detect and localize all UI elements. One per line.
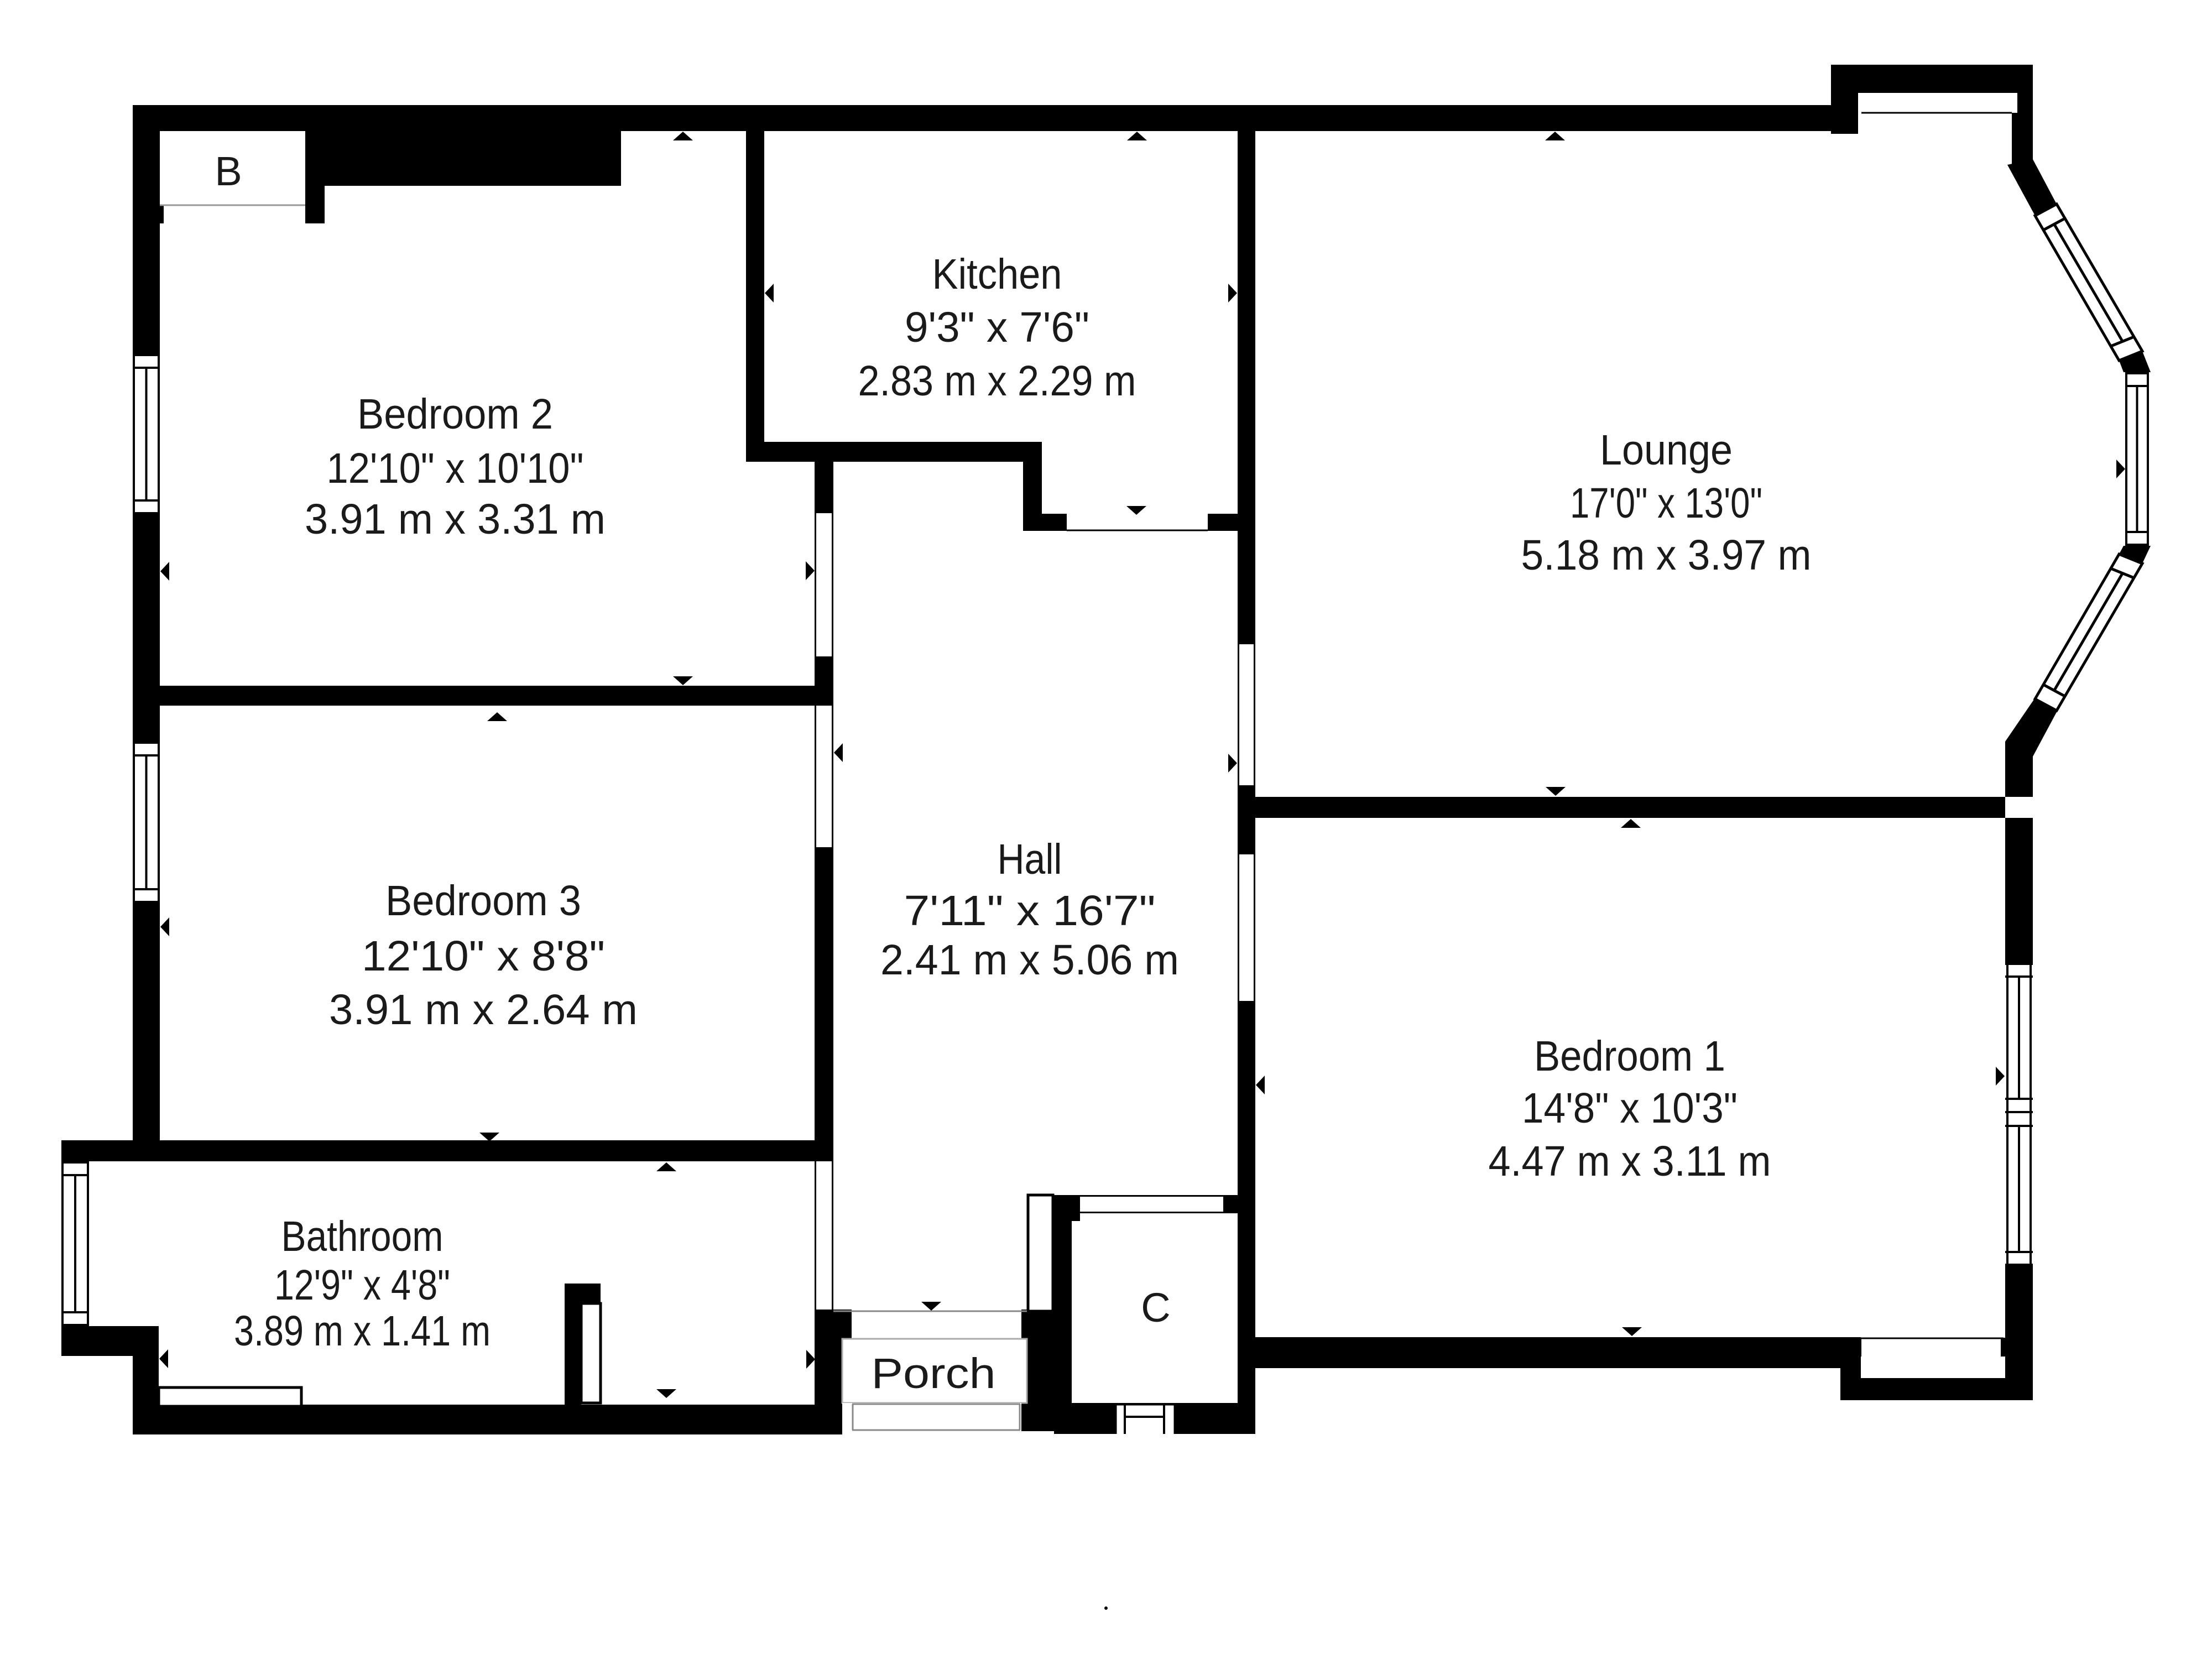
svg-text:12'10" x 8'8": 12'10" x 8'8" — [362, 932, 605, 980]
svg-text:17'0" x 13'0": 17'0" x 13'0" — [1570, 479, 1762, 527]
svg-text:Bedroom 2: Bedroom 2 — [357, 390, 553, 438]
svg-text:3.89 m x 1.41 m: 3.89 m x 1.41 m — [234, 1307, 491, 1355]
svg-text:2.41 m x 5.06 m: 2.41 m x 5.06 m — [880, 936, 1179, 984]
svg-text:12'9" x 4'8": 12'9" x 4'8" — [274, 1261, 450, 1309]
svg-text:3.91 m x 3.31 m: 3.91 m x 3.31 m — [305, 495, 606, 543]
svg-text:3.91 m x 2.64 m: 3.91 m x 2.64 m — [329, 986, 638, 1034]
svg-text:2.83 m x 2.29 m: 2.83 m x 2.29 m — [858, 357, 1136, 405]
svg-text:9'3" x 7'6": 9'3" x 7'6" — [905, 304, 1089, 351]
svg-text:Porch: Porch — [872, 1350, 996, 1397]
svg-text:4.47 m x 3.11 m: 4.47 m x 3.11 m — [1489, 1138, 1771, 1185]
svg-text:Bedroom 3: Bedroom 3 — [385, 877, 581, 925]
svg-text:Bathroom: Bathroom — [281, 1213, 444, 1260]
svg-text:Lounge: Lounge — [1600, 426, 1733, 474]
svg-text:Kitchen: Kitchen — [932, 251, 1062, 298]
svg-text:12'10" x 10'10": 12'10" x 10'10" — [327, 445, 584, 492]
svg-text:14'8" x 10'3": 14'8" x 10'3" — [1522, 1084, 1738, 1132]
svg-text:Hall: Hall — [998, 836, 1062, 883]
svg-text:C: C — [1141, 1285, 1170, 1331]
svg-text:Bedroom 1: Bedroom 1 — [1534, 1032, 1725, 1080]
svg-text:7'11" x 16'7": 7'11" x 16'7" — [904, 887, 1156, 935]
svg-text:5.18 m x 3.97 m: 5.18 m x 3.97 m — [1521, 531, 1812, 579]
svg-text:B: B — [215, 148, 242, 194]
